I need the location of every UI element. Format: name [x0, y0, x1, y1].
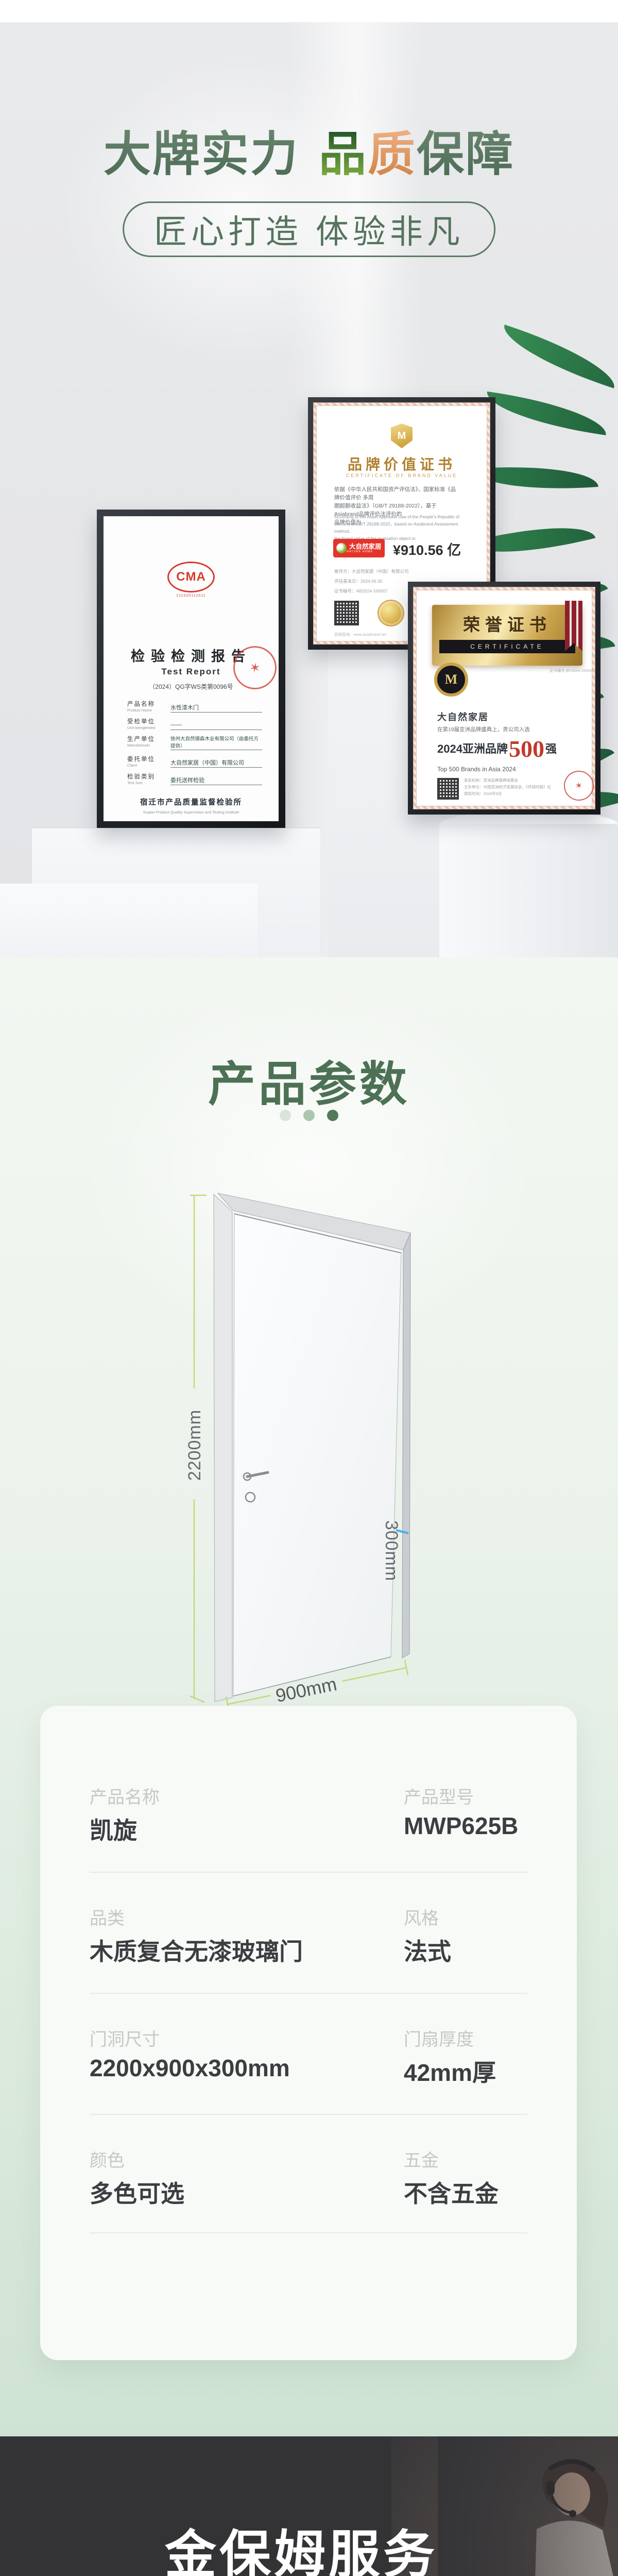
service-section: 金保姆服务 全国1000+实体门店支持 咨询下单 › 上门量尺 › — [0, 2436, 618, 2576]
field-row: 受检单位Unit beingtested —— — [127, 717, 262, 730]
plant-leaf — [484, 392, 610, 435]
spec-card: 产品名称 凯旋 产品型号 MWP625B 品类 木质复合无漆玻璃门 风格 法式 … — [40, 1706, 577, 2360]
hero-subtitle: 匠心打造 体验非凡 — [154, 206, 464, 253]
nature-home-logo: 大自然家居 NATURE HOME — [333, 539, 385, 557]
dot — [280, 1110, 291, 1121]
test-report-fields: 产品名称Product Name 水性漆木门 受检单位Unit beingtes… — [127, 700, 262, 790]
service-heading: 金保姆服务 — [0, 2513, 603, 2576]
pedestal-cylinder — [439, 824, 617, 957]
spec-value: MWP625B — [404, 1812, 518, 1840]
field-value: 委托送样检验 — [170, 776, 262, 785]
brand-value-amount: ¥910.56 亿 — [393, 539, 480, 559]
spec-value: 木质复合无漆玻璃门 — [90, 1933, 303, 1967]
field-row: 委托单位Client 大自然家居（中国）有限公司 — [127, 755, 262, 768]
brand-name-en: NATURE HOME — [347, 550, 382, 553]
field-label-en: Product Name — [127, 708, 170, 713]
divider — [90, 1993, 527, 1994]
award-number: 500 — [509, 738, 544, 760]
cma-logo-number: 211020112011 — [166, 594, 216, 598]
product-detail-page: 大牌实力品质保障 匠心打造 体验非凡 CMA — [0, 0, 618, 2576]
spec-label: 五金 — [404, 2146, 439, 2172]
brand-value-paragraph-en: According to the Asset Appraisal Law of … — [334, 513, 460, 542]
spec-label: 门扇厚度 — [404, 2025, 474, 2050]
hero-subtitle-pill: 匠心打造 体验非凡 — [123, 201, 495, 257]
spec-value: 凯旋 — [90, 1812, 137, 1846]
field-label-en: Client — [127, 763, 170, 768]
spec-label: 产品型号 — [404, 1783, 474, 1808]
medal-letter: M — [445, 672, 458, 687]
field-value: —— — [170, 722, 262, 730]
certificate-paper: 荣誉证书 CERTIFICATE M 证书编号 BP2024-100047 大自… — [416, 590, 592, 806]
field-label: 检验类别 — [127, 772, 170, 781]
honor-brand: 大自然家居 — [437, 710, 489, 723]
title-dots — [0, 1110, 618, 1121]
pedestal-left-front — [0, 884, 257, 957]
field-row: 产品名称Product Name 水性漆木门 — [127, 700, 262, 713]
spec-value: 42mm厚 — [404, 2054, 496, 2088]
cma-logo-text: CMA — [167, 562, 215, 592]
dot — [303, 1110, 315, 1121]
honor-meta: 发奖机构：亚洲品牌盛典组委会 主办单位：中国亚洲经济发展协会、《环球时报》社 颁… — [464, 777, 562, 797]
plant-leaf — [496, 325, 618, 388]
spec-label: 品类 — [90, 1904, 125, 1929]
brand-value-title: 品牌价值证书 — [317, 453, 487, 474]
field-label: 生产单位 — [127, 735, 170, 743]
depth-dimension-label: 300mm — [382, 1520, 401, 1581]
gold-plaque: 荣誉证书 CERTIFICATE — [432, 605, 582, 666]
divider — [90, 2114, 527, 2115]
qr-code — [334, 601, 359, 625]
field-label-en: Unit beingtested — [127, 725, 170, 730]
section-title-brand: 大牌实力品质保障 — [0, 116, 618, 184]
qr-code — [437, 778, 459, 800]
certificate-test-report: CMA 211020112011 检验检测报告 Test Report （202… — [97, 510, 285, 828]
honor-title: 荣誉证书 — [432, 611, 582, 636]
medal-icon: M — [434, 663, 468, 697]
spec-value: 不含五金 — [404, 2175, 499, 2209]
spec-value: 2200x900x300mm — [90, 2054, 290, 2082]
field-label: 受检单位 — [127, 717, 170, 725]
gold-shield-icon: M — [391, 423, 413, 448]
certificate-section: 大牌实力品质保障 匠心打造 体验非凡 CMA — [0, 22, 618, 957]
field-value: 水性漆木门 — [170, 703, 262, 713]
title-char-pin: 品 — [319, 128, 368, 181]
field-label-en: Test Sort — [127, 781, 170, 785]
spec-label: 产品名称 — [90, 1783, 160, 1808]
honor-line: 在第19届亚洲品牌盛典上，贵公司入选 — [437, 725, 530, 733]
paragraph-line: China and GB/T 29188-2022，based on Asiab… — [334, 520, 460, 535]
certificate-paper: CMA 211020112011 检验检测报告 Test Report （202… — [104, 516, 279, 821]
cma-logo: CMA 211020112011 — [166, 562, 216, 598]
nature-home-logo-icon — [336, 543, 347, 553]
certificate-ribbon-banner: CERTIFICATE — [439, 640, 575, 653]
door-frame — [214, 1193, 410, 1702]
seal-star: ✶ — [574, 780, 583, 792]
title-part-right: 保障 — [417, 128, 514, 181]
certificate-number: 证书编号 BP2024-100047 — [525, 668, 601, 673]
door-dimension-diagram: 2200mm 300mm 900mm — [188, 1190, 420, 1716]
award-row: 2024亚洲品牌 500 强 — [437, 738, 557, 760]
spec-label: 颜色 — [90, 2146, 125, 2172]
certificate-honor: 荣誉证书 CERTIFICATE M 证书编号 BP2024-100047 大自… — [408, 582, 600, 815]
spec-label: 门洞尺寸 — [90, 2025, 160, 2050]
spec-label: 风格 — [404, 1904, 439, 1929]
brand-value-title-en: CERTIFICATE OF BRAND VALUE — [317, 473, 487, 478]
shield-letter: M — [398, 430, 406, 442]
field-label: 产品名称 — [127, 700, 170, 708]
dot — [327, 1110, 338, 1121]
red-seal-icon: ✶ — [562, 769, 596, 803]
paragraph-line: According to the Asset Appraisal Law of … — [334, 513, 460, 520]
title-char-zhi: 质 — [368, 128, 417, 181]
meta-line: 发奖机构：亚洲品牌盛典组委会 — [464, 777, 562, 784]
meta-line: 被评方：大自然家居（中国）有限公司 — [334, 567, 463, 577]
award-prefix: 2024亚洲品牌 — [437, 738, 508, 760]
brand-name-cn: 大自然家居 — [349, 544, 382, 550]
institute-name-en: Suqian Product Quality Supervision and T… — [104, 810, 279, 815]
divider — [90, 2232, 527, 2233]
paragraph-line: 依据《中华人民共和国资产评估法》、国家标准《品牌价值评价 多周 — [334, 485, 460, 502]
divider — [90, 1872, 527, 1873]
field-value: 大自然家居（中国）有限公司 — [170, 758, 262, 768]
field-label: 委托单位 — [127, 755, 170, 763]
institute-name: 宿迁市产品质量监督检验所 — [104, 796, 279, 807]
award-suffix: 强 — [545, 738, 557, 760]
field-value: 徐州大自然德森木业有限公司（由委托方提供） — [170, 735, 262, 750]
spec-value: 法式 — [404, 1933, 451, 1967]
height-dimension-label: 2200mm — [188, 1410, 204, 1481]
meta-line: 颁奖时间：2024年9月 — [464, 790, 562, 797]
stamp-star: ✶ — [248, 659, 262, 677]
door-leaf — [233, 1214, 401, 1696]
spec-value: 多色可选 — [90, 2175, 184, 2209]
field-label-en: Manufacturer — [127, 743, 170, 748]
parameters-title: 产品参数 — [0, 1046, 618, 1114]
field-row: 检验类别Test Sort 委托送样检验 — [127, 772, 262, 785]
field-row: 生产单位Manufacturer 徐州大自然德森木业有限公司（由委托方提供） — [127, 735, 262, 750]
gold-seal-icon — [377, 600, 404, 626]
meta-line: 主办单位：中国亚洲经济发展协会、《环球时报》社 — [464, 784, 562, 790]
title-part-left: 大牌实力 — [104, 128, 299, 181]
award-en: Top 500 Brands in Asia 2024 — [437, 766, 516, 773]
